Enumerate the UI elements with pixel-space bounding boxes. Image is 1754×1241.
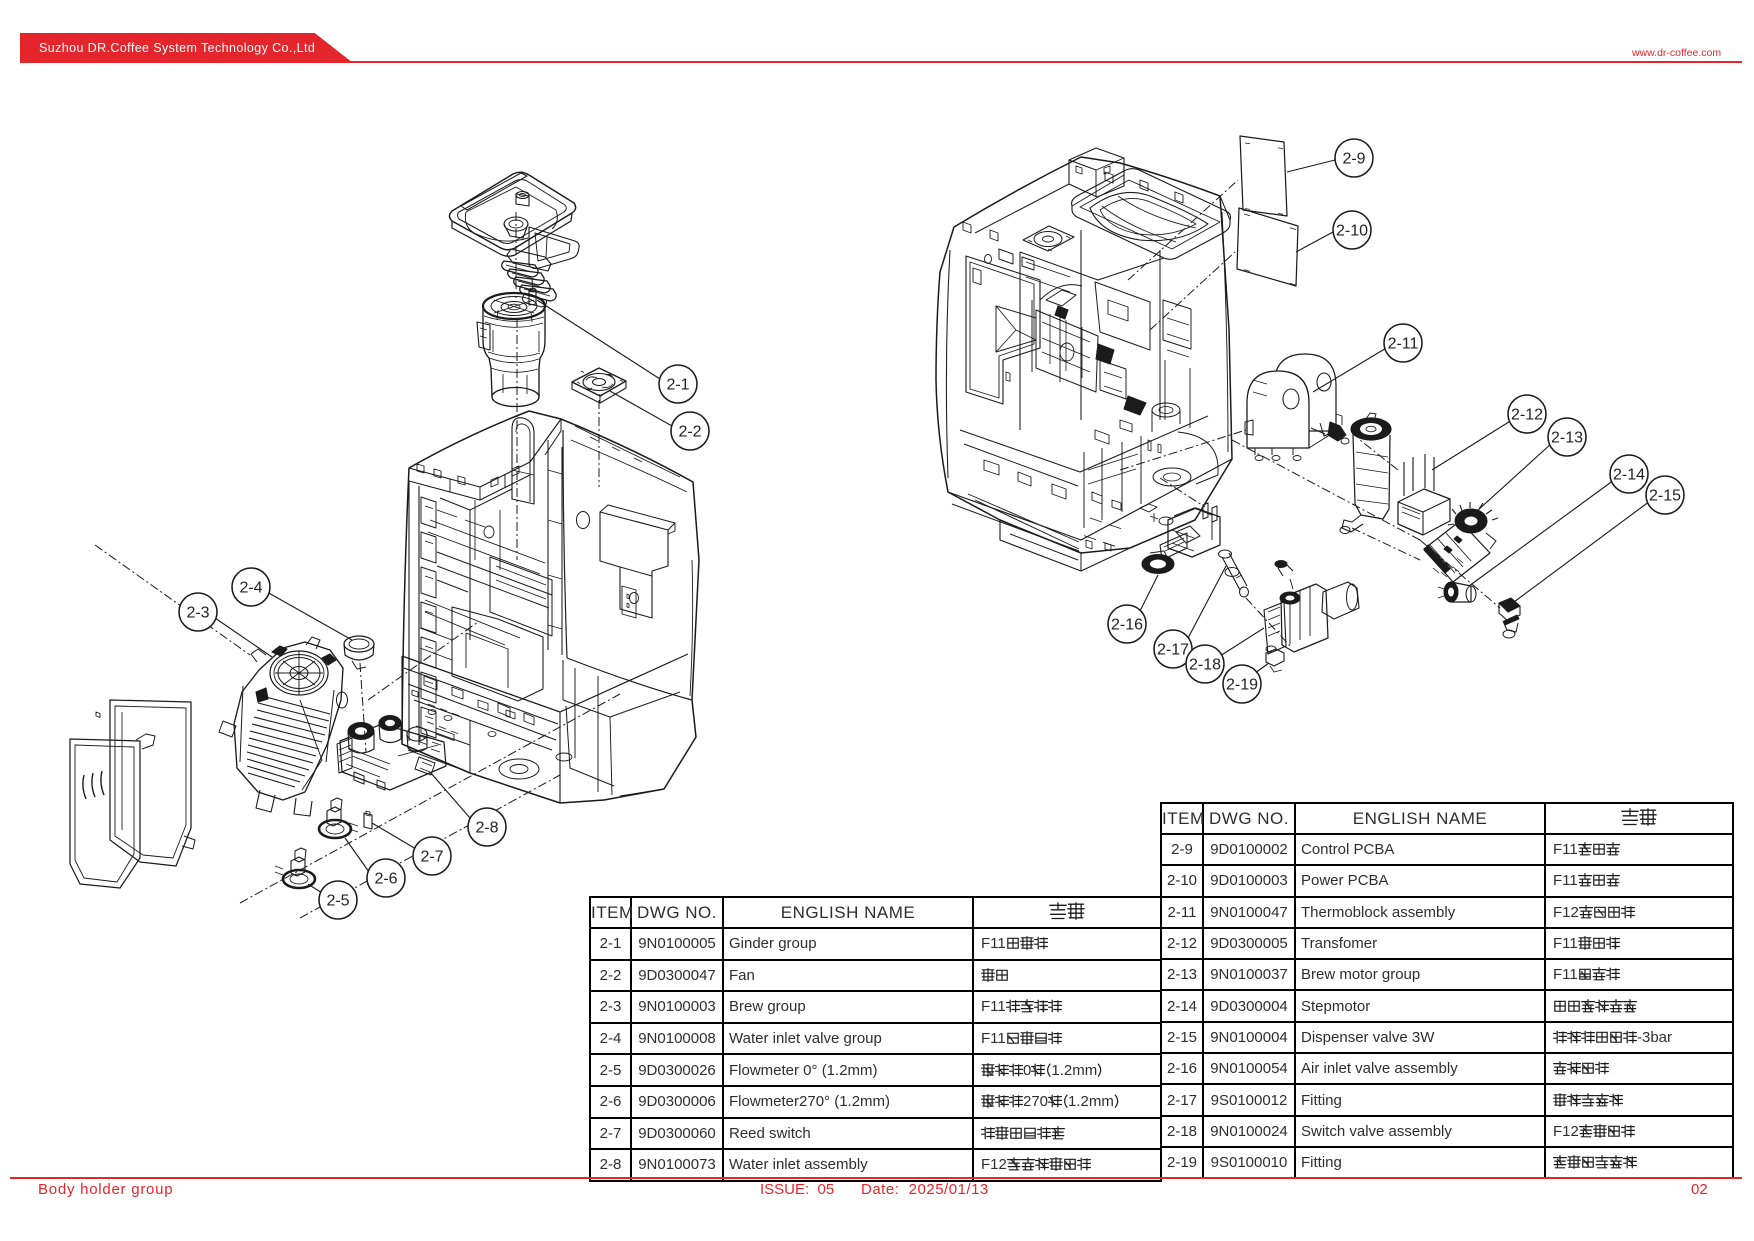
svg-text:2-5: 2-5 [326,893,349,910]
svg-text:2-4: 2-4 [239,580,262,597]
svg-text:2-2: 2-2 [678,424,701,441]
svg-text:2-11: 2-11 [1388,336,1419,353]
svg-text:2-18: 2-18 [1189,657,1221,674]
svg-text:2-16: 2-16 [1111,617,1143,634]
svg-text:2-1: 2-1 [666,377,689,394]
svg-text:2-15: 2-15 [1649,488,1681,505]
svg-text:2-9: 2-9 [1342,151,1365,168]
svg-text:2-13: 2-13 [1551,430,1583,447]
svg-text:2-7: 2-7 [420,849,443,866]
svg-text:2-8: 2-8 [475,820,498,837]
svg-text:2-17: 2-17 [1157,642,1189,659]
svg-text:2-10: 2-10 [1336,223,1368,240]
svg-text:2-12: 2-12 [1511,407,1543,424]
svg-text:2-14: 2-14 [1613,467,1645,484]
svg-text:2-6: 2-6 [374,871,397,888]
svg-text:2-3: 2-3 [186,605,209,622]
svg-text:2-19: 2-19 [1226,677,1258,694]
